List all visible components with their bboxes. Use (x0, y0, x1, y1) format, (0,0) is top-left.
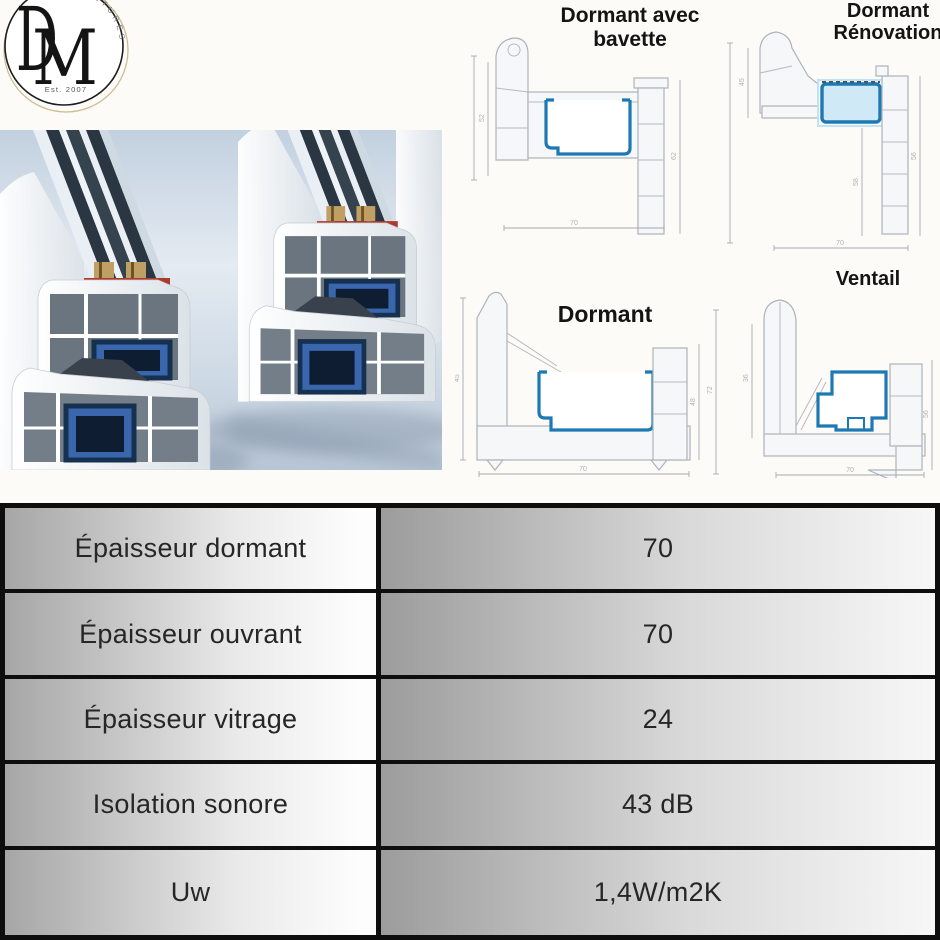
logo-established-text: Est. 2007 (45, 85, 88, 94)
company-logo: ETURES D M Est. 2007 (0, 0, 160, 126)
svg-text:58: 58 (853, 178, 860, 186)
spec-value-epaisseur-vitrage: 24 (381, 679, 935, 764)
svg-text:36: 36 (743, 374, 750, 382)
svg-text:70: 70 (836, 240, 844, 247)
ladder-column (882, 76, 908, 234)
sash-right-wall (890, 364, 922, 446)
svg-text:48: 48 (690, 398, 697, 406)
spec-table: Épaisseur dormant 70 Épaisseur ouvrant 7… (0, 503, 940, 940)
svg-text:70: 70 (570, 220, 578, 227)
page: ETURES D M Est. 2007 (0, 0, 940, 940)
spec-value-epaisseur-ouvrant: 70 (381, 593, 935, 678)
extension-column (638, 88, 664, 234)
bavette-head (496, 38, 528, 160)
drawing-dormant-renovation: 45 58 56 70 (722, 18, 934, 260)
spec-value-uw: 1,4W/m2K (381, 850, 935, 935)
spec-label-epaisseur-ouvrant: Épaisseur ouvrant (5, 593, 381, 678)
spec-value-isolation-sonore: 43 dB (381, 764, 935, 849)
spec-label-epaisseur-vitrage: Épaisseur vitrage (5, 679, 381, 764)
spec-value-epaisseur-dormant: 70 (381, 508, 935, 593)
drawing-dormant: 45 48 70 (455, 278, 705, 480)
svg-text:70: 70 (846, 467, 854, 474)
svg-text:45: 45 (455, 374, 461, 382)
steel-box (822, 84, 880, 122)
steel-channel (539, 372, 653, 430)
svg-text:56: 56 (923, 410, 930, 418)
spec-label-uw: Uw (5, 850, 381, 935)
frame-left-wall (477, 292, 507, 438)
spec-label-epaisseur-dormant: Épaisseur dormant (5, 508, 381, 593)
spec-label-isolation-sonore: Isolation sonore (5, 764, 381, 849)
svg-text:52: 52 (479, 114, 486, 122)
drawing-ventail: 72 36 56 70 (700, 278, 938, 478)
drawing-dormant-avec-bavette: 52 70 62 (468, 28, 690, 240)
frame-right-wall (653, 348, 687, 460)
svg-text:56: 56 (911, 152, 918, 160)
svg-text:62: 62 (671, 152, 678, 160)
svg-text:72: 72 (707, 386, 714, 394)
steel-profile (818, 372, 886, 430)
renovation-head (760, 32, 818, 113)
renovation-flange (762, 106, 818, 118)
steel-channel (546, 100, 630, 154)
svg-text:70: 70 (579, 466, 587, 473)
svg-text:45: 45 (739, 78, 746, 86)
window-profile-photo (0, 130, 442, 470)
